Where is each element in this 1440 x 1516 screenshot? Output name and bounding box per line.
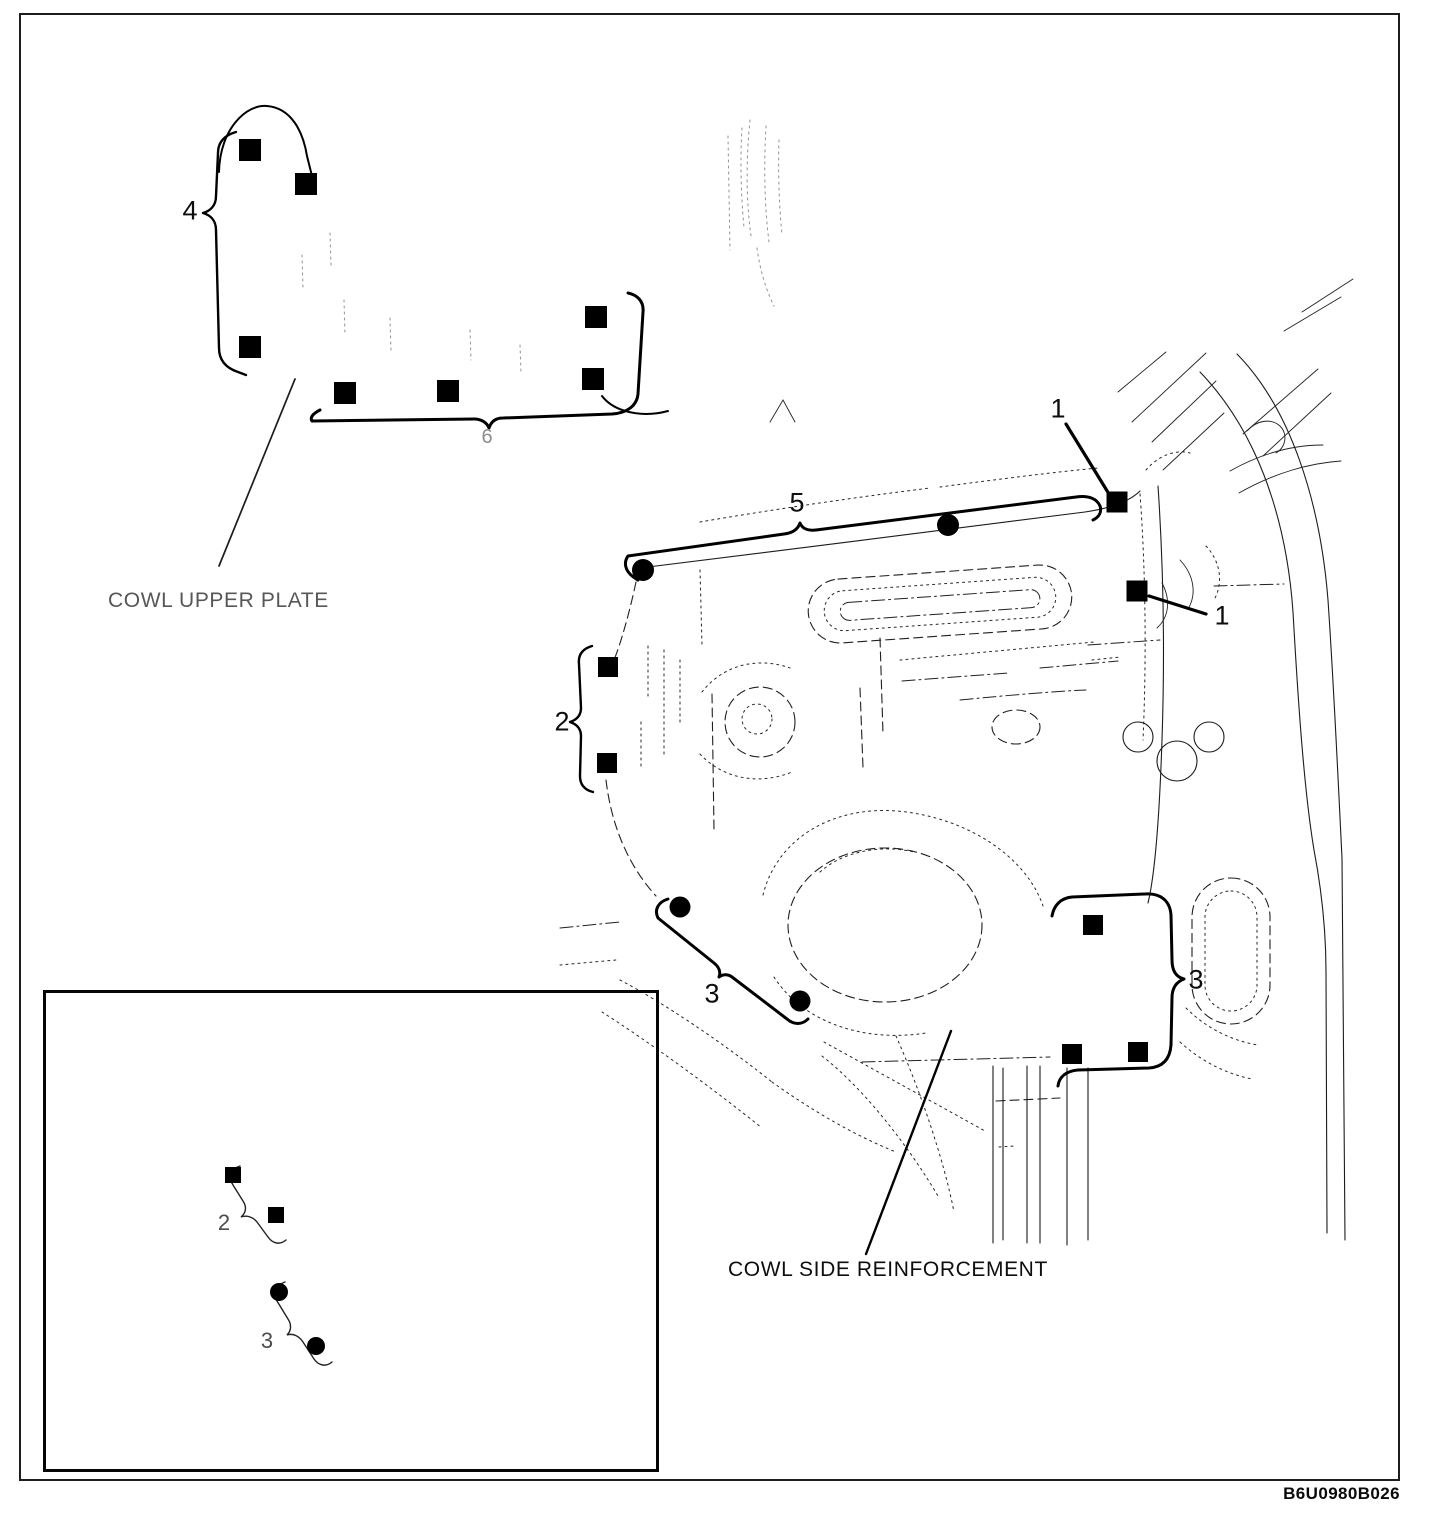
cowl-upper-plate-label: COWL UPPER PLATE <box>108 590 329 611</box>
callout-3: 3 <box>704 981 719 1008</box>
callout-3: 3 <box>261 1330 273 1352</box>
figure-reference-code: B6U0980B026 <box>1283 1484 1400 1504</box>
callout-1: 1 <box>1214 603 1229 630</box>
callout-4: 4 <box>182 198 197 225</box>
diagram-page: 4651123323 COWL UPPER PLATE COWL SIDE RE… <box>0 0 1440 1516</box>
cowl-side-reinforcement-label: COWL SIDE REINFORCEMENT <box>728 1259 1048 1280</box>
callout-5: 5 <box>789 490 804 517</box>
callout-6: 6 <box>481 427 492 447</box>
callout-1: 1 <box>1050 396 1065 423</box>
callout-3: 3 <box>1188 967 1203 994</box>
callout-2: 2 <box>554 709 569 736</box>
callout-layer: 4651123323 <box>0 0 1440 1516</box>
callout-2: 2 <box>218 1212 230 1234</box>
